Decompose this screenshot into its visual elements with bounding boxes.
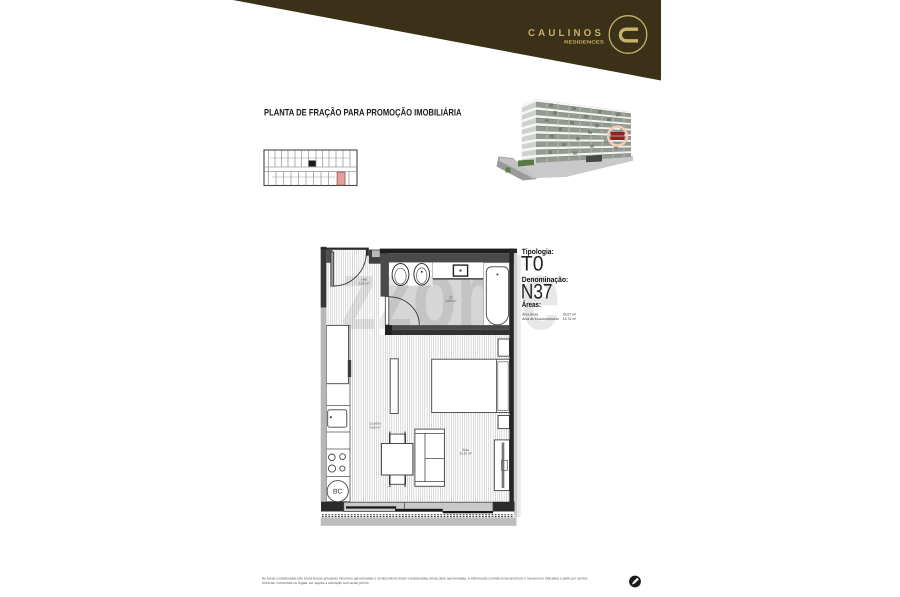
svg-text:13,76 m²: 13,76 m² — [563, 317, 577, 321]
svg-text:RESIDENCES: RESIDENCES — [564, 39, 604, 44]
svg-text:1,82 m²: 1,82 m² — [359, 281, 370, 285]
svg-text:T0: T0 — [521, 252, 544, 275]
svg-text:15,10 m²: 15,10 m² — [459, 452, 472, 456]
svg-text:Área Bruta: Área Bruta — [522, 313, 538, 317]
svg-text:6,66 m²: 6,66 m² — [370, 425, 381, 429]
svg-text:Área de Estacionamento: Área de Estacionamento — [522, 317, 559, 321]
svg-text:33,07 m²: 33,07 m² — [563, 313, 577, 317]
svg-text:PLANTA DE FRAÇÃO PARA PROMOÇÃO: PLANTA DE FRAÇÃO PARA PROMOÇÃO IMOBILIÁR… — [264, 107, 462, 118]
svg-text:As áreas consideradas são área: As áreas consideradas são áreas brutas p… — [262, 577, 588, 581]
svg-text:BC: BC — [333, 489, 343, 496]
svg-text:Áreas:: Áreas: — [522, 300, 541, 309]
svg-text:6,00 m²: 6,00 m² — [446, 299, 457, 303]
svg-text:CAULINOS: CAULINOS — [528, 28, 604, 39]
svg-text:técnicas, comerciais ou legais: técnicas, comerciais ou legais, ser suje… — [262, 581, 369, 585]
